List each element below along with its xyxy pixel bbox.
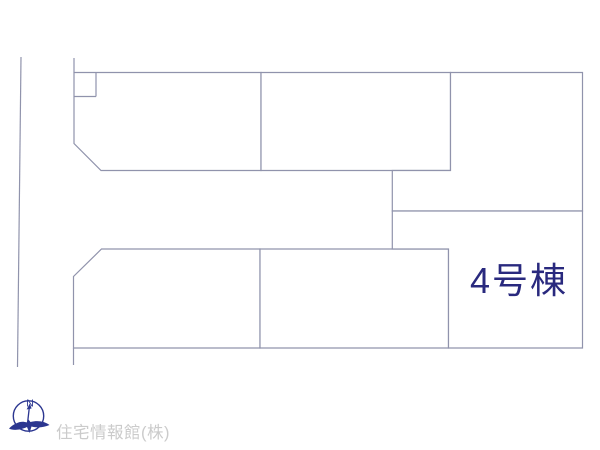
lot-top-middle <box>261 73 451 171</box>
lot-bottom-left <box>74 249 261 348</box>
compass-north-label: N <box>26 398 34 410</box>
lot-4-label: 4号棟 <box>470 260 568 301</box>
site-plan: 4号棟 N 住宅情報館(株) <box>0 0 600 450</box>
lot-bottom-middle <box>260 249 449 348</box>
road-edge-line <box>18 57 22 367</box>
lot-boundaries <box>18 57 583 367</box>
lot-top-left <box>74 73 261 171</box>
compass-icon: N <box>9 398 50 434</box>
site-plan-drawing: 4号棟 N 住宅情報館(株) <box>0 0 600 450</box>
company-credit: 住宅情報館(株) <box>56 423 170 442</box>
